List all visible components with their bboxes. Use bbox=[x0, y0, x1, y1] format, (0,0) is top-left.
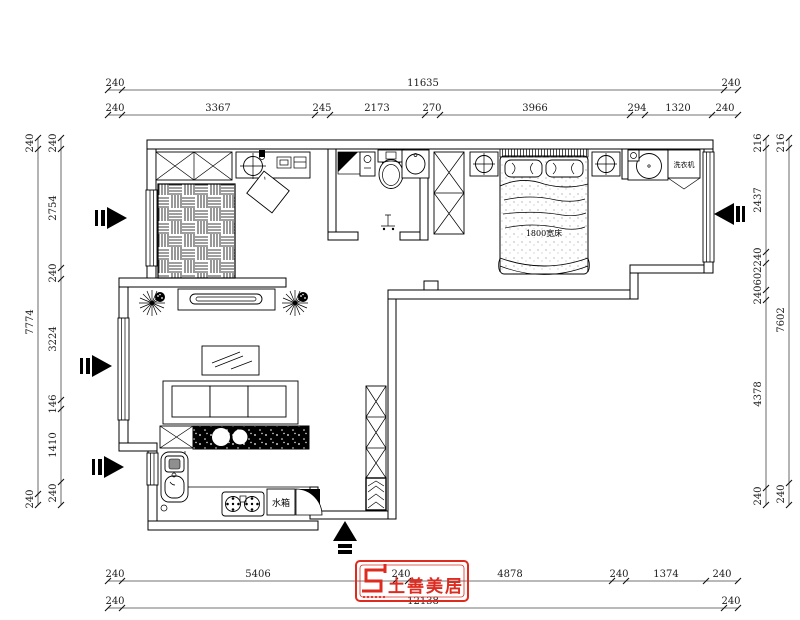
dim-value: 240 bbox=[105, 596, 124, 607]
corner-drain-symbol bbox=[628, 150, 639, 161]
dim-value: 4378 bbox=[753, 381, 764, 406]
dim-value: 2437 bbox=[753, 187, 764, 212]
window-arrow-left-bottom bbox=[92, 456, 124, 478]
dim-value: 245 bbox=[312, 103, 331, 114]
dim-value: 1374 bbox=[653, 569, 678, 580]
toilet-symbol bbox=[378, 150, 404, 189]
kitchen-window bbox=[147, 453, 158, 485]
nightstand-left-symbol bbox=[470, 152, 498, 176]
dim-value: 216 bbox=[753, 133, 764, 152]
dim-value: 240 bbox=[721, 596, 740, 607]
dim-value: 216 bbox=[776, 133, 787, 152]
bathroom bbox=[338, 150, 429, 230]
dim-value: 240 bbox=[712, 569, 731, 580]
dim-value: 240 bbox=[48, 133, 59, 152]
drain-symbol bbox=[161, 505, 167, 511]
bedroom-window bbox=[703, 152, 714, 262]
living-room bbox=[139, 289, 309, 449]
window-arrow-right bbox=[714, 203, 745, 225]
study-room bbox=[156, 150, 310, 278]
coffee-table-symbol bbox=[202, 346, 259, 375]
dim-value: 240 bbox=[609, 569, 628, 580]
bar-counter-symbol bbox=[193, 426, 309, 449]
dim-value: 240 bbox=[48, 483, 59, 502]
dim-value: 2754 bbox=[48, 195, 59, 220]
door-swing-symbol bbox=[296, 489, 322, 515]
plant-symbol bbox=[139, 290, 165, 316]
dim-value: 602 bbox=[753, 266, 764, 285]
dim-value: 1410 bbox=[48, 432, 59, 457]
bed-label: 1800宽床 bbox=[526, 228, 562, 238]
dim-right-outer: 216 7602 240 bbox=[776, 133, 792, 508]
dim-value: 7774 bbox=[25, 309, 36, 334]
dim-value: 240 bbox=[715, 103, 734, 114]
brand-logo: 土善美居 bbox=[356, 561, 468, 601]
dim-value: 146 bbox=[48, 394, 59, 413]
dim-value: 240 bbox=[25, 133, 36, 152]
nightstand-right-symbol bbox=[592, 152, 620, 176]
washing-machine-symbol: 洗衣机 bbox=[668, 150, 700, 189]
dim-value: 270 bbox=[422, 103, 441, 114]
logo-monogram bbox=[362, 564, 386, 598]
dim-value: 3224 bbox=[48, 326, 59, 351]
bedroom: 1800宽床 bbox=[434, 149, 620, 275]
dim-value: 240 bbox=[753, 285, 764, 304]
dim-value: 294 bbox=[627, 103, 646, 114]
dim-value: 240 bbox=[105, 569, 124, 580]
dim-top-row1: 240 11635 240 bbox=[105, 78, 741, 93]
dim-value: 240 bbox=[25, 489, 36, 508]
entry-arrow-bottom bbox=[333, 521, 357, 554]
vanity-sink-symbol bbox=[402, 150, 429, 178]
dim-value: 1320 bbox=[665, 103, 690, 114]
bed-symbol: 1800宽床 bbox=[499, 156, 590, 275]
wardrobe-symbol bbox=[156, 152, 232, 180]
dim-value: 5406 bbox=[245, 569, 270, 580]
flue-symbol bbox=[366, 478, 386, 510]
floor-drain-symbol bbox=[381, 215, 395, 230]
logo-text: 土善美居 bbox=[388, 576, 464, 597]
tatami-mat-symbol bbox=[158, 184, 235, 278]
kitchen-sink-symbol bbox=[161, 452, 188, 502]
dim-value: 7602 bbox=[776, 307, 787, 332]
plant-symbol bbox=[282, 290, 308, 316]
tv-cabinet-symbol bbox=[178, 289, 275, 310]
dim-value: 3966 bbox=[522, 103, 547, 114]
dim-bottom-row2: 240 12138 240 bbox=[105, 596, 741, 611]
dim-value: 240 bbox=[105, 103, 124, 114]
dim-value: 240 bbox=[721, 78, 740, 89]
dim-left-inner: 240 2754 240 3224 146 1410 240 bbox=[48, 133, 64, 508]
water-tank-label: 水箱 bbox=[272, 497, 290, 509]
dim-value: 240 bbox=[753, 247, 764, 266]
duct-shaft bbox=[366, 386, 386, 510]
study-window bbox=[146, 190, 157, 266]
gas-stove-symbol bbox=[222, 492, 264, 516]
dim-value: 3367 bbox=[205, 103, 230, 114]
dim-left-outer: 240 7774 240 bbox=[25, 133, 41, 508]
window-arrow-left-middle bbox=[80, 355, 112, 377]
shower-corner-symbol bbox=[338, 152, 360, 174]
dim-value: 240 bbox=[48, 263, 59, 282]
side-table-symbol bbox=[160, 426, 193, 448]
dim-value: 2173 bbox=[364, 103, 389, 114]
water-tank-symbol: 水箱 bbox=[267, 489, 295, 515]
bath-fixture-symbol bbox=[360, 152, 375, 176]
living-window bbox=[118, 318, 129, 420]
washing-machine-label: 洗衣机 bbox=[674, 160, 695, 169]
dim-value: 240 bbox=[776, 484, 787, 503]
floor-plan-drawing: 240 11635 240 240 3367 245 2173 270 3966… bbox=[0, 0, 800, 620]
floor-plan-page: 240 11635 240 240 3367 245 2173 270 3966… bbox=[0, 0, 800, 620]
window-arrow-left-top bbox=[95, 207, 127, 229]
dim-top-row2: 240 3367 245 2173 270 3966 294 1320 240 bbox=[105, 103, 741, 118]
dim-value: 4878 bbox=[497, 569, 522, 580]
dim-value: 240 bbox=[753, 486, 764, 505]
laundry-area: 洗衣机 bbox=[628, 150, 700, 189]
dim-value: 240 bbox=[105, 78, 124, 89]
wardrobe-symbol bbox=[434, 152, 464, 234]
dim-value: 11635 bbox=[407, 78, 439, 89]
sofa-symbol bbox=[163, 381, 298, 424]
kitchen: 水箱 bbox=[161, 451, 322, 516]
dim-right-inner: 216 2437 240 602 240 4378 240 bbox=[753, 133, 769, 508]
